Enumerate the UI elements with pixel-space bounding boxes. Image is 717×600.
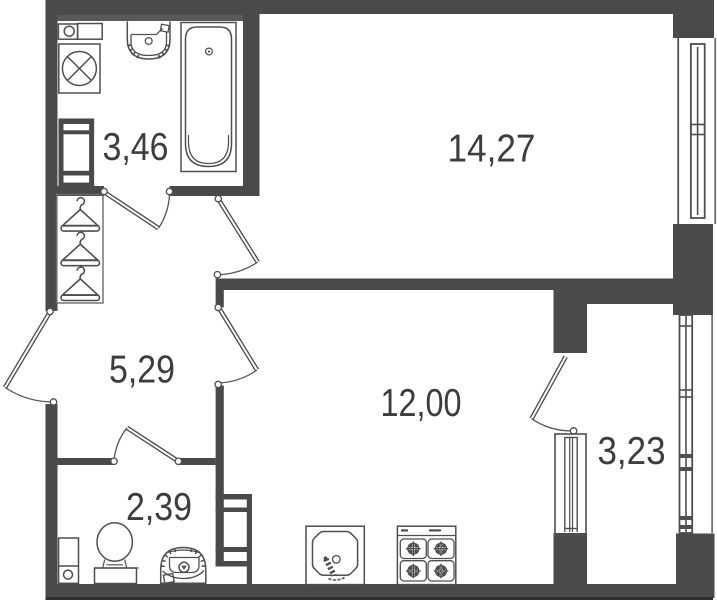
svg-text:3,23: 3,23 [598,430,666,473]
svg-text:5,29: 5,29 [109,349,175,392]
svg-text:3,46: 3,46 [103,126,169,169]
svg-text:14,27: 14,27 [448,128,536,171]
svg-text:12,00: 12,00 [381,382,462,425]
svg-text:2,39: 2,39 [126,486,192,529]
